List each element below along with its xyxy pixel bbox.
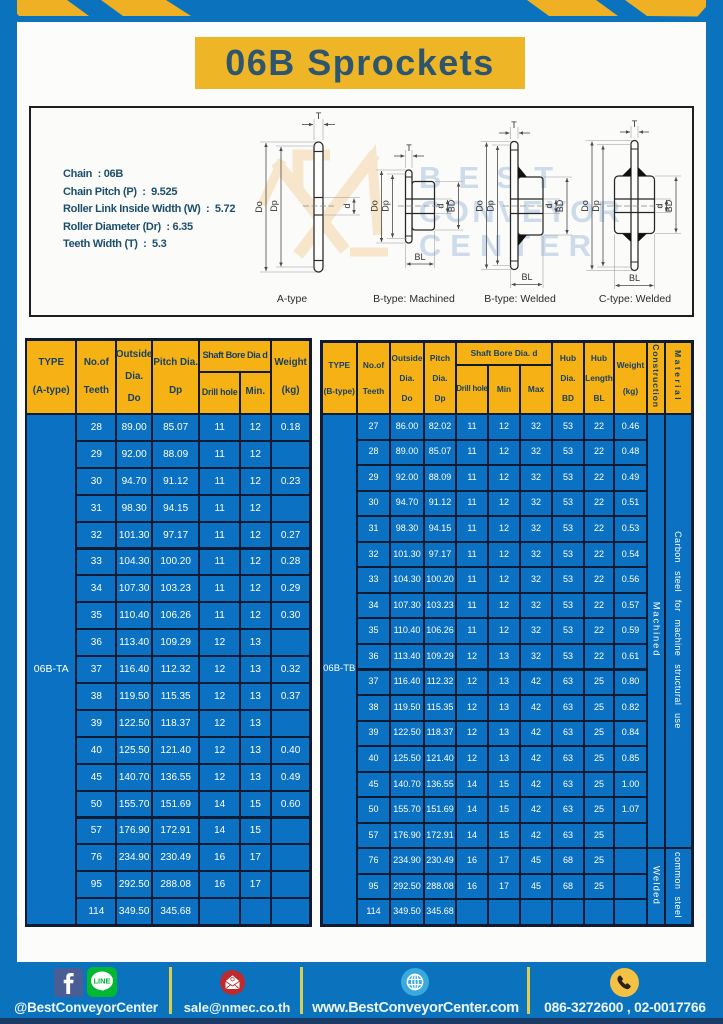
svg-text:Dp: Dp [591, 200, 601, 212]
svg-text:BD: BD [555, 199, 565, 212]
svg-text:T: T [632, 119, 638, 129]
svg-text:Dp: Dp [381, 200, 391, 212]
svg-text:BL: BL [629, 273, 640, 283]
svg-text:d: d [544, 203, 554, 208]
svg-text:d: d [342, 203, 352, 208]
svg-text:Do: Do [580, 200, 590, 212]
svg-text:T: T [316, 111, 322, 121]
svg-text:Do: Do [370, 200, 380, 212]
svg-text:Dp: Dp [269, 200, 279, 212]
svg-text:Do: Do [475, 200, 485, 212]
svg-text:BL: BL [414, 252, 425, 262]
svg-text:Do: Do [254, 201, 264, 213]
svg-text:d: d [436, 203, 446, 208]
svg-text:BD: BD [447, 199, 457, 212]
svg-text:LINE: LINE [93, 977, 110, 986]
svg-text:T: T [406, 143, 412, 153]
svg-text:Dp: Dp [486, 200, 496, 212]
svg-text:BL: BL [521, 272, 532, 282]
svg-text:T: T [511, 120, 517, 130]
